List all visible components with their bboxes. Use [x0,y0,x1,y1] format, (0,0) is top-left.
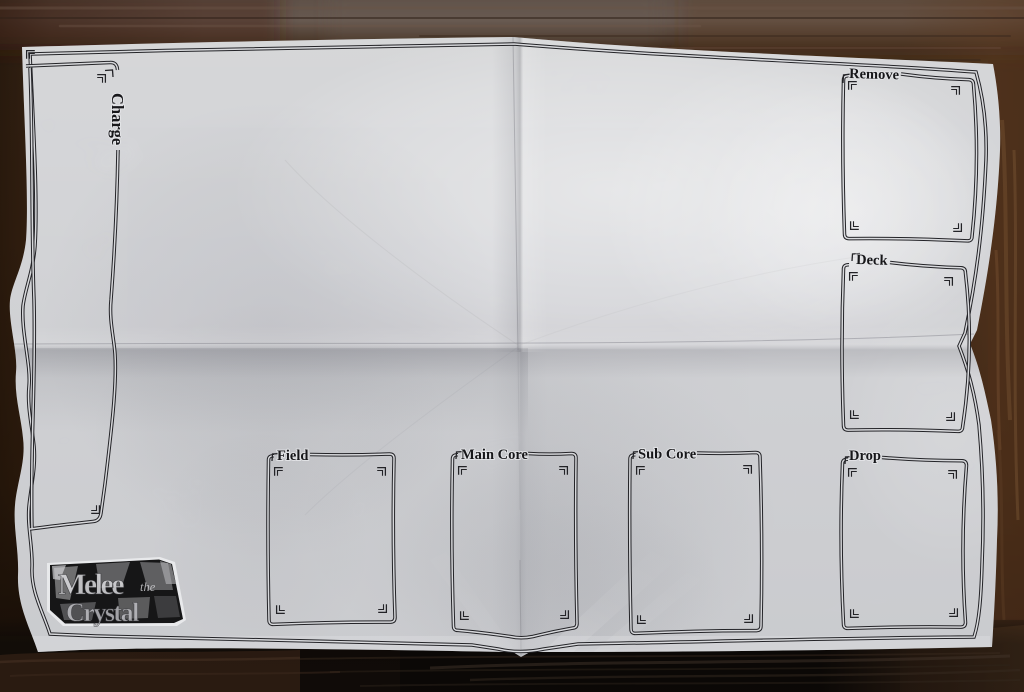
svg-text:Melee: Melee [58,568,124,601]
svg-text:Deck: Deck [856,252,889,269]
svg-text:Remove: Remove [849,66,900,83]
svg-text:Field: Field [277,448,308,464]
svg-text:the: the [140,580,156,594]
svg-text:Crystal: Crystal [66,598,139,627]
svg-text:Sub Core: Sub Core [638,447,697,463]
svg-text:Main Core: Main Core [461,447,529,463]
svg-text:Charge: Charge [108,93,127,145]
svg-text:Drop: Drop [849,448,881,464]
